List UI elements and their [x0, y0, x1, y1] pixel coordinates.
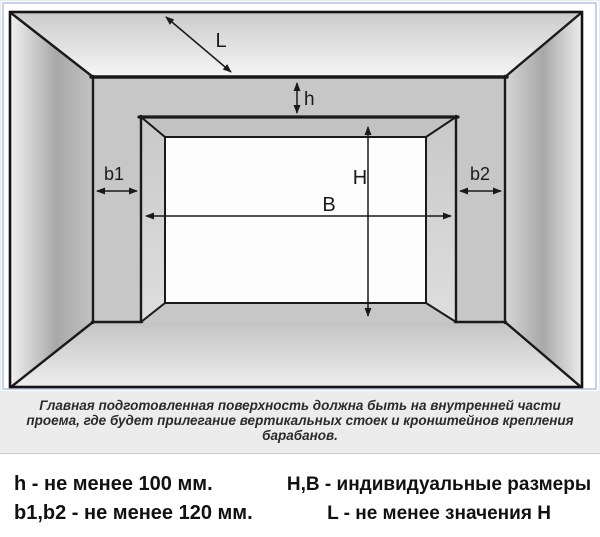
legend-item-b1-b2: b1,b2 - не менее 120 мм.: [14, 499, 278, 528]
legend-item-h: h - не менее 100 мм.: [14, 470, 278, 499]
size-requirements-legend: h - не менее 100 мм. b1,b2 - не менее 12…: [0, 454, 600, 536]
ceiling-surface: [11, 13, 581, 77]
floor-surface: [11, 322, 581, 387]
legend-item-L: L - не менее значения H: [278, 499, 600, 528]
caption-note: Главная подготовленная поверхность должн…: [0, 392, 600, 454]
garage-opening-diagram: L h b1 b2 B H: [0, 0, 600, 392]
opening-left-jamb: [141, 117, 165, 322]
dim-label-H: H: [353, 167, 367, 189]
legend-column-left: h - не менее 100 мм. b1,b2 - не менее 12…: [0, 470, 278, 536]
dim-label-B: B: [322, 194, 335, 216]
legend-item-H-B: H,B - индивидуальные размеры: [278, 470, 600, 499]
garage-opening-svg: L h b1 b2 B H: [0, 0, 600, 392]
dim-label-h: h: [304, 89, 315, 110]
dim-label-b1: b1: [104, 164, 124, 184]
caption-line-3: барабанов.: [0, 428, 600, 443]
page: L h b1 b2 B H Главная подготовленная пов…: [0, 0, 600, 537]
opening-right-jamb: [426, 117, 456, 322]
opening-lintel-band: [141, 117, 456, 137]
caption-line-2: проема, где будет прилегание вертикальны…: [0, 413, 600, 428]
door-opening-white: [165, 137, 426, 303]
dim-label-L: L: [215, 30, 226, 52]
caption-line-1: Главная подготовленная поверхность должн…: [0, 398, 600, 413]
legend-column-right: H,B - индивидуальные размеры L - не мене…: [278, 470, 600, 536]
dim-label-b2: b2: [470, 164, 490, 184]
